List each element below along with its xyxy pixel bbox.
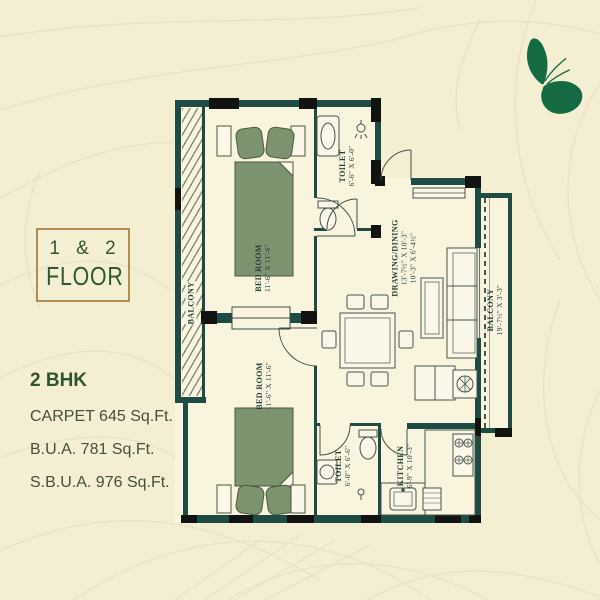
wardrobe [232,307,290,329]
unit-type: 2 BHK [30,370,173,392]
room-label-bedroom-bottom: BED ROOM 11'-6" X 11'-6" [255,362,273,410]
floor-number-badge: 1 & 2 FLOOR [36,228,130,302]
room-name: BED ROOM [254,244,263,292]
tv-console [413,188,465,198]
floor-number-text: 1 & 2 [38,238,128,260]
room-dim: 6'-6" X 6'-0" [347,146,356,187]
room-label-toilet-top: TOILET 6'-6" X 6'-0" [338,146,356,187]
super-builtup-area: S.B.U.A. 976 Sq.Ft. [30,474,173,492]
room-label-bedroom-top: BED ROOM 11'-6" X 11'-6" [254,244,272,292]
room-name: BED ROOM [255,362,264,410]
room-label-balcony-left: BALCONY [186,282,197,325]
room-dim: 11'-6" X 11'-6" [263,244,272,292]
room-dim: 19'-7½" X 3'-3" [495,285,504,335]
floorplan-page: 1 & 2 FLOOR 2 BHK CARPET 645 Sq.Ft. B.U.… [0,0,600,600]
builtup-area: B.U.A. 781 Sq.Ft. [30,441,173,459]
room-name: TOILET [334,446,343,487]
floor-plan: BED ROOM 11'-6" X 11'-6" BED ROOM 11'-6"… [175,98,520,546]
room-label-balcony-right: BALCONY 19'-7½" X 3'-3" [486,285,504,335]
room-name: KITCHEN [396,444,405,489]
room-dim: 13'-7½" X 10'-3" [400,219,409,296]
room-dim: 10'-3" X 6'-4½" [409,219,418,296]
balcony-left-hatch [182,108,203,396]
room-label-toilet-bottom: TOILET 6'-0" X 6'-6" [334,446,352,487]
room-label-kitchen: KITCHEN 6'-9" X 10'-3" [396,444,414,489]
room-name: DRAWING/DINING [391,219,400,296]
unit-details: 2 BHK CARPET 645 Sq.Ft. B.U.A. 781 Sq.Ft… [30,370,173,507]
room-dim: 6'-9" X 10'-3" [405,444,414,489]
room-name: BALCONY [187,282,196,325]
room-name: BALCONY [486,285,495,335]
room-label-drawing-dining: DRAWING/DINING 13'-7½" X 10'-3" 10'-3" X… [391,219,418,296]
floor-word-text: FLOOR [46,261,120,292]
carpet-area: CARPET 645 Sq.Ft. [30,408,173,426]
room-dim: 11'-6" X 11'-6" [264,362,273,410]
room-dim: 6'-0" X 6'-6" [343,446,352,487]
room-name: TOILET [338,146,347,187]
